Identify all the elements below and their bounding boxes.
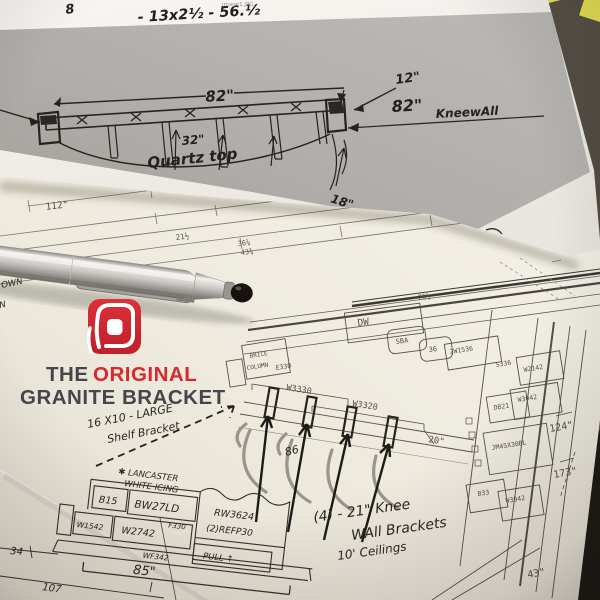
dim-43-label: 43¾	[240, 248, 254, 257]
dim-85-label: 85"	[132, 563, 156, 580]
dim-34-label: 34	[10, 546, 24, 558]
blueprint-photo: 112" 21½ 36¼ 43¾ DW SBA 36 2W1536 76½	[0, 0, 600, 600]
dim-36-label: 36¼	[237, 239, 251, 248]
dim-76-label: 76½	[417, 292, 431, 302]
logo-the: THE	[46, 363, 89, 386]
logo-granite-bracket: GRANITE BRACKET	[20, 386, 226, 409]
dim-82-kneewall-label: 82"	[391, 95, 423, 116]
logo-original: ORIGINAL	[93, 363, 197, 386]
island-b15: B15	[98, 494, 118, 507]
dim-82-top-label: 82"	[205, 86, 235, 105]
dim-32-label: 32"	[181, 132, 205, 148]
dim-21-label: 21½	[175, 231, 190, 242]
cabinet-label-dw: DW	[357, 317, 370, 329]
photo-canvas: 112" 21½ 36¼ 43¾ DW SBA 36 2W1536 76½	[0, 0, 600, 600]
cabinet-label-36: 36	[428, 345, 437, 354]
sketch-filename: image1.JPG	[222, 2, 254, 8]
